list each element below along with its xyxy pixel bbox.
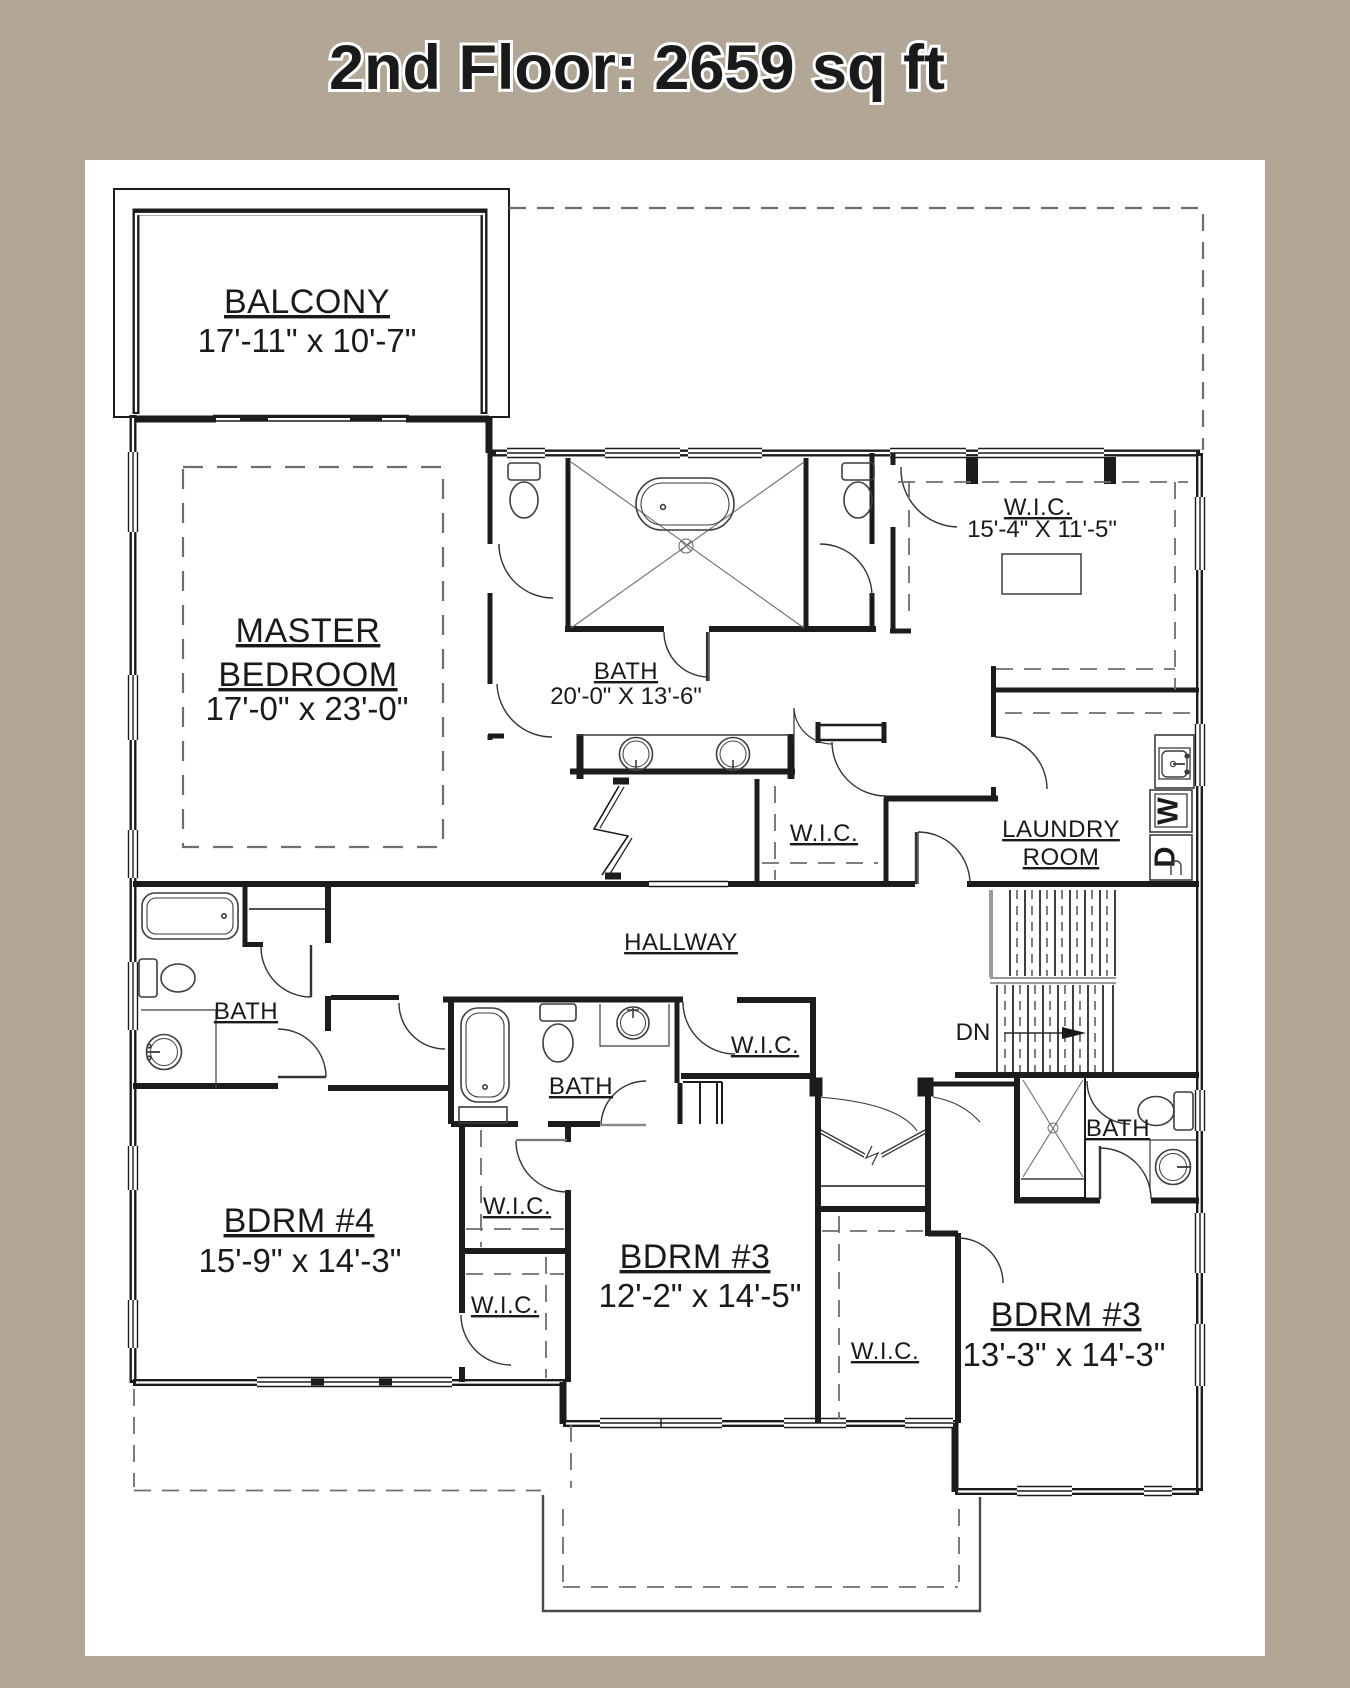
svg-text:W.I.C.: W.I.C. bbox=[790, 820, 858, 847]
svg-text:HALLWAY: HALLWAY bbox=[624, 929, 738, 956]
svg-text:W.I.C.: W.I.C. bbox=[851, 1338, 919, 1365]
svg-text:15'-9" x 14'-3": 15'-9" x 14'-3" bbox=[199, 1242, 402, 1279]
svg-text:MASTER: MASTER bbox=[236, 612, 381, 650]
svg-text:BATH: BATH bbox=[1086, 1115, 1150, 1142]
svg-text:20'-0" X 13'-6": 20'-0" X 13'-6" bbox=[550, 683, 702, 710]
svg-text:DN: DN bbox=[956, 1019, 991, 1046]
svg-text:2nd Floor: 2659 sq ft: 2nd Floor: 2659 sq ft bbox=[329, 33, 945, 103]
svg-text:BEDROOM: BEDROOM bbox=[218, 656, 397, 694]
svg-text:12'-2" x 14'-5": 12'-2" x 14'-5" bbox=[599, 1277, 802, 1314]
svg-text:BDRM #3: BDRM #3 bbox=[991, 1296, 1142, 1334]
svg-text:W.I.C.: W.I.C. bbox=[731, 1032, 799, 1059]
svg-text:BALCONY: BALCONY bbox=[224, 283, 390, 321]
svg-text:W.I.C.: W.I.C. bbox=[483, 1193, 551, 1220]
svg-text:BATH: BATH bbox=[549, 1073, 613, 1100]
svg-text:W: W bbox=[1153, 797, 1185, 825]
svg-text:BATH: BATH bbox=[214, 998, 278, 1025]
svg-text:BATH: BATH bbox=[594, 658, 658, 685]
svg-text:13'-3" x 14'-3": 13'-3" x 14'-3" bbox=[963, 1336, 1166, 1373]
svg-text:W.I.C.: W.I.C. bbox=[471, 1292, 539, 1319]
svg-text:ROOM: ROOM bbox=[1023, 844, 1100, 871]
svg-text:17'-11" x 10'-7": 17'-11" x 10'-7" bbox=[198, 322, 417, 359]
svg-text:D: D bbox=[1150, 847, 1182, 868]
svg-text:BDRM #3: BDRM #3 bbox=[620, 1238, 771, 1276]
svg-text:17'-0" x 23'-0": 17'-0" x 23'-0" bbox=[206, 690, 409, 727]
svg-text:BDRM #4: BDRM #4 bbox=[224, 1202, 375, 1240]
svg-text:LAUNDRY: LAUNDRY bbox=[1002, 816, 1120, 843]
svg-text:15'-4" X 11'-5": 15'-4" X 11'-5" bbox=[967, 516, 1117, 543]
